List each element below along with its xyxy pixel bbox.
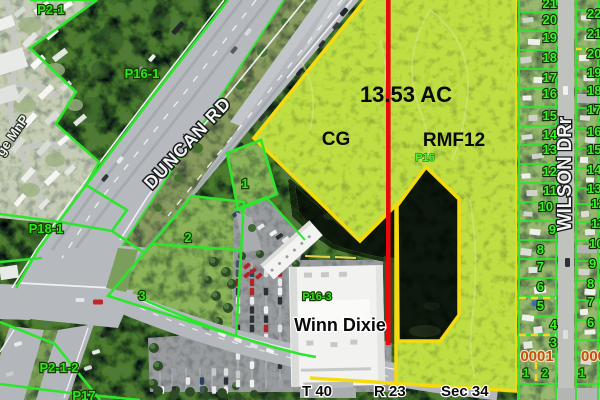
svg-text:18: 18 [543, 50, 557, 65]
svg-text:19: 19 [543, 30, 557, 45]
svg-text:R 23: R 23 [374, 383, 406, 400]
svg-text:16: 16 [543, 86, 557, 101]
svg-text:P16: P16 [415, 152, 435, 164]
svg-text:21: 21 [543, 0, 557, 11]
svg-text:P16-3: P16-3 [302, 291, 331, 303]
svg-text:16: 16 [587, 124, 600, 139]
svg-text:1: 1 [579, 366, 586, 380]
svg-text:17: 17 [543, 70, 557, 85]
svg-text:1: 1 [241, 176, 248, 191]
svg-text:10: 10 [589, 236, 600, 251]
svg-text:4: 4 [550, 317, 558, 332]
svg-text:11: 11 [543, 183, 557, 198]
svg-text:19: 19 [587, 65, 600, 80]
svg-text:P18-1: P18-1 [29, 221, 64, 236]
svg-text:1: 1 [523, 366, 530, 380]
svg-text:11: 11 [591, 216, 600, 231]
svg-text:6: 6 [537, 279, 544, 294]
svg-text:15: 15 [543, 108, 557, 123]
svg-text:2: 2 [184, 230, 191, 245]
svg-text:7: 7 [587, 294, 594, 309]
svg-text:14: 14 [543, 127, 558, 142]
svg-text:WILSON DRr: WILSON DRr [554, 117, 576, 231]
svg-text:3: 3 [550, 335, 557, 350]
svg-text:15: 15 [587, 142, 600, 157]
svg-text:9: 9 [549, 222, 556, 237]
svg-text:18: 18 [587, 83, 600, 98]
svg-text:P2-1: P2-1 [37, 2, 64, 17]
svg-text:7: 7 [537, 259, 544, 274]
svg-text:0001: 0001 [581, 348, 600, 365]
svg-text:10: 10 [539, 199, 553, 214]
svg-text:20: 20 [587, 46, 600, 61]
svg-text:T 40: T 40 [302, 383, 332, 400]
svg-text:P16-1: P16-1 [125, 66, 160, 81]
svg-text:13.53 AC: 13.53 AC [360, 82, 452, 107]
svg-text:5: 5 [537, 298, 544, 313]
svg-text:12: 12 [591, 196, 600, 211]
svg-text:Sec 34: Sec 34 [441, 383, 489, 400]
svg-text:21: 21 [587, 26, 600, 41]
svg-text:8: 8 [537, 242, 544, 257]
svg-text:8: 8 [587, 276, 594, 291]
svg-text:14: 14 [587, 162, 600, 177]
svg-text:9: 9 [589, 256, 596, 271]
svg-text:CG: CG [322, 129, 351, 150]
svg-text:17: 17 [587, 102, 600, 117]
svg-text:3: 3 [138, 288, 145, 303]
svg-text:Winn Dixie: Winn Dixie [294, 315, 386, 335]
svg-text:RMF12: RMF12 [423, 130, 485, 151]
svg-text:12: 12 [543, 164, 557, 179]
svg-text:2: 2 [542, 366, 549, 380]
svg-text:P17: P17 [72, 388, 95, 400]
svg-text:P2-1-2: P2-1-2 [39, 360, 78, 375]
svg-text:13: 13 [543, 142, 557, 157]
svg-text:6: 6 [587, 315, 594, 330]
svg-text:22: 22 [587, 6, 600, 21]
svg-text:20: 20 [543, 12, 557, 27]
svg-text:13: 13 [587, 181, 600, 196]
